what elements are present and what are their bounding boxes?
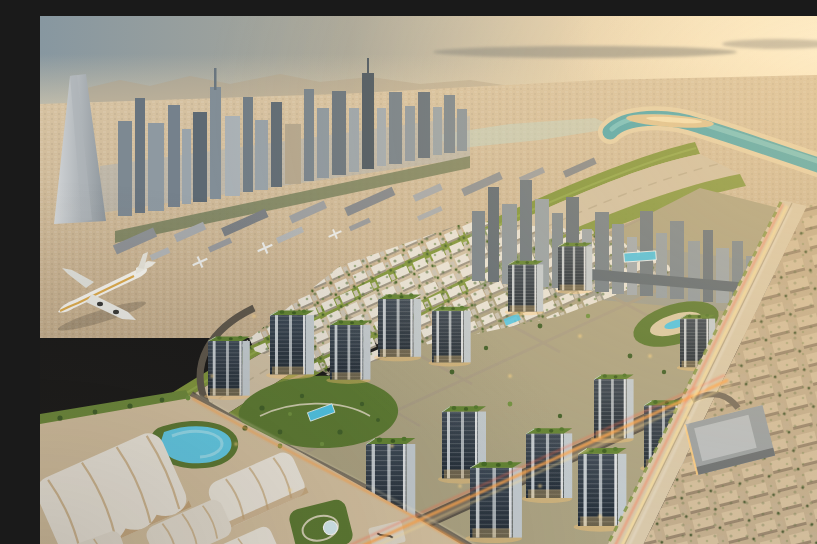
aerial-cityscape-photo: Golden-hour aerial view of a desert metr… xyxy=(40,16,817,544)
corner-vignette xyxy=(40,16,817,544)
